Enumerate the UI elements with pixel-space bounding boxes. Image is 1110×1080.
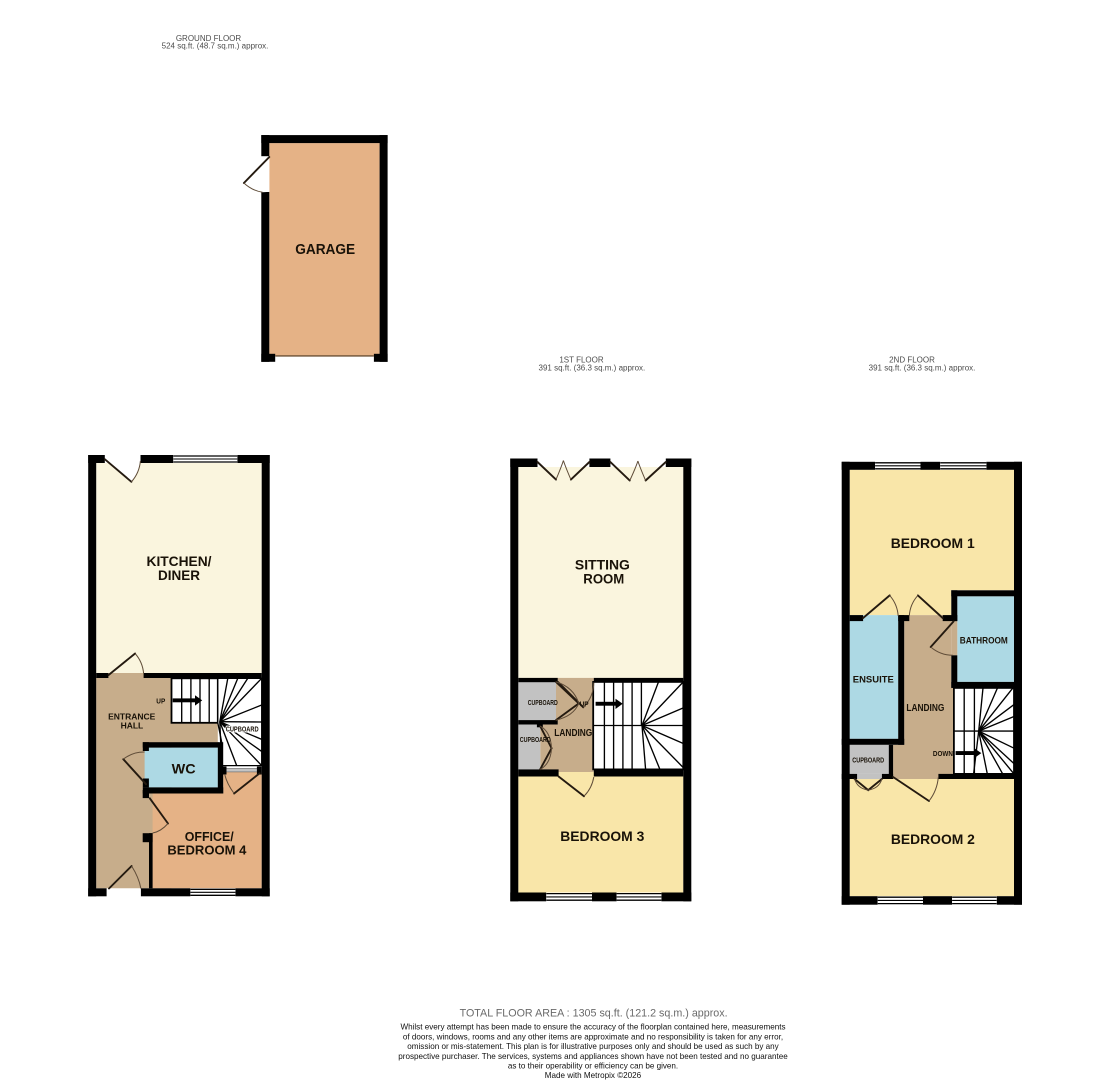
svg-text:CUPBOARD: CUPBOARD [226,727,259,734]
svg-text:DOWN: DOWN [933,751,953,758]
svg-text:CUPBOARD: CUPBOARD [528,700,558,707]
svg-text:omission or mis-statement. Thi: omission or mis-statement. This plan is … [407,1042,779,1051]
svg-text:UP: UP [580,702,589,709]
svg-text:TOTAL FLOOR AREA : 1305 sq.ft.: TOTAL FLOOR AREA : 1305 sq.ft. (121.2 sq… [460,1008,728,1020]
svg-text:CUPBOARD: CUPBOARD [520,737,551,744]
svg-text:LANDING: LANDING [906,703,944,714]
svg-text:BATHROOM: BATHROOM [960,636,1008,646]
svg-text:CUPBOARD: CUPBOARD [852,758,884,765]
svg-text:WC: WC [172,761,196,777]
svg-text:UP: UP [156,699,165,706]
svg-text:BEDROOM 2: BEDROOM 2 [891,831,975,847]
svg-text:ENSUITE: ENSUITE [853,675,894,686]
svg-text:524 sq.ft. (48.7 sq.m.) approx: 524 sq.ft. (48.7 sq.m.) approx. [162,42,269,51]
svg-text:GARAGE: GARAGE [295,242,355,258]
svg-text:as to their operability or eff: as to their operability or efficiency ca… [508,1062,678,1071]
svg-text:Made with Metropix ©2026: Made with Metropix ©2026 [545,1071,642,1080]
svg-text:Whilst every attempt has been: Whilst every attempt has been made to en… [400,1023,785,1032]
svg-text:HALL: HALL [121,720,144,730]
svg-text:OFFICE/: OFFICE/ [185,829,234,844]
svg-text:391 sq.ft. (36.3 sq.m.) approx: 391 sq.ft. (36.3 sq.m.) approx. [869,363,976,372]
svg-text:391 sq.ft. (36.3 sq.m.) approx: 391 sq.ft. (36.3 sq.m.) approx. [539,363,646,372]
svg-text:prospective purchaser. The ser: prospective purchaser. The services, sys… [398,1052,788,1061]
svg-text:of doors, windows, rooms and a: of doors, windows, rooms and any other i… [403,1032,783,1041]
svg-text:BEDROOM 4: BEDROOM 4 [167,843,247,858]
svg-text:DINER: DINER [158,567,200,583]
svg-text:BEDROOM 1: BEDROOM 1 [891,535,975,551]
svg-text:BEDROOM 3: BEDROOM 3 [560,828,644,844]
svg-text:LANDING: LANDING [554,728,592,739]
svg-text:ROOM: ROOM [583,570,624,586]
